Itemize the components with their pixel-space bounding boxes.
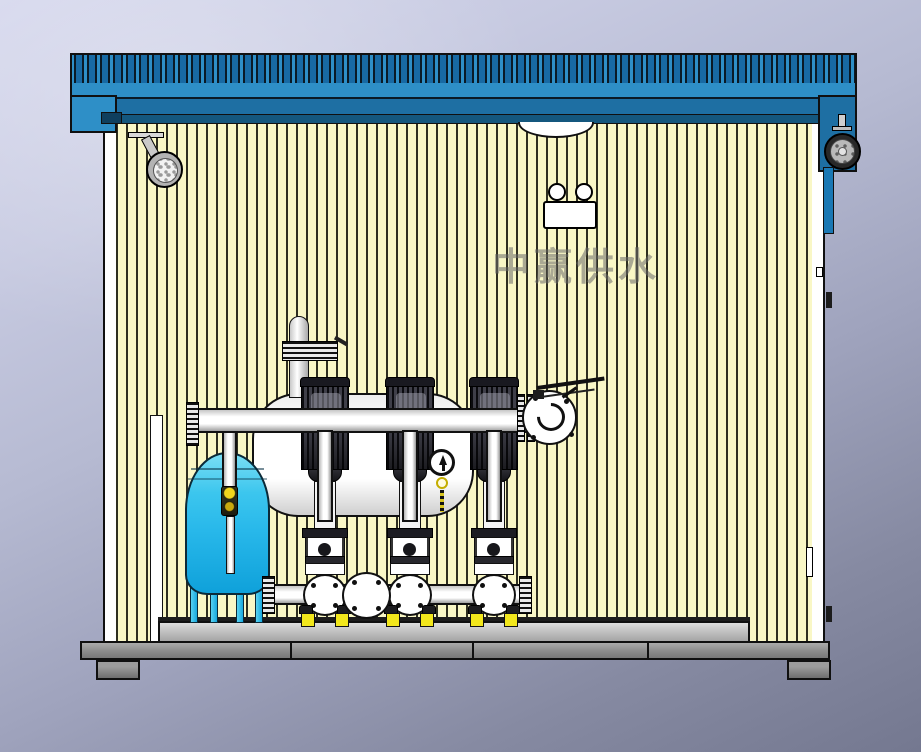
valve-bolt [531, 435, 536, 440]
manifold-left-flange [186, 402, 199, 446]
base-foot-left [96, 660, 140, 680]
watermark-text: 中赢供水 [492, 236, 682, 291]
door-hinge-top [826, 292, 832, 308]
tank-inlet-pipe [222, 430, 237, 490]
tank-pipe-valve-icon [221, 486, 238, 516]
vibration-damper [470, 613, 484, 627]
pump-riser-pipe [402, 430, 418, 522]
flange-bolt [376, 606, 381, 611]
vibration-damper [386, 613, 400, 627]
flange-bolt [311, 583, 316, 588]
door-knob [816, 267, 823, 277]
vibration-damper [301, 613, 315, 627]
flange-bolt [333, 583, 338, 588]
vibration-damper [335, 613, 349, 627]
pump-coupling-ball [318, 543, 331, 556]
indicator-box [543, 201, 597, 229]
beam-seam [290, 643, 292, 658]
base-frame-beam [80, 641, 830, 660]
flange-bolt [376, 580, 381, 585]
beam-seam [647, 643, 649, 658]
control-cabinet [823, 167, 834, 234]
indicator-lamp-left [548, 183, 566, 201]
pump-riser-pipe [486, 430, 502, 522]
flange-bolt [480, 583, 485, 588]
gauge-needle-stem [442, 462, 445, 471]
roof-eave-strip [118, 114, 820, 124]
gauge-stem [440, 490, 444, 512]
roof-left-notch [101, 112, 122, 124]
suction-right-flange [519, 576, 532, 614]
vibration-damper [504, 613, 518, 627]
pump-riser-pipe [317, 430, 333, 522]
spotlight-lens [153, 158, 178, 183]
tank-drain-pipe [226, 516, 235, 574]
roof-corrugation [72, 55, 855, 83]
exhaust-fan-hub [838, 147, 847, 156]
indicator-lamp-right [575, 183, 593, 201]
door-handle [806, 547, 813, 577]
pump-coupling-ball [487, 543, 500, 556]
door-hinge-bottom [826, 606, 832, 622]
vibration-damper [420, 613, 434, 627]
discharge-manifold [189, 408, 533, 433]
valve-bolt [564, 399, 569, 404]
flange-bolt [418, 583, 423, 588]
valve-bolt [569, 432, 574, 437]
base-foot-right [787, 660, 831, 680]
roof-lower-band [100, 97, 855, 115]
flange-bolt [352, 606, 357, 611]
gauge-valve-ring [436, 477, 448, 489]
flange-bolt [352, 580, 357, 585]
equipment-platform [158, 621, 750, 643]
fan-stem-bar [832, 126, 852, 131]
flange-bolt [502, 583, 507, 588]
pump-station-cad-render: 中赢供水 [0, 0, 921, 752]
beam-seam [472, 643, 474, 658]
pump-coupling-ball [403, 543, 416, 556]
air-valve-flange [282, 341, 338, 361]
flange-bolt [396, 583, 401, 588]
frame-post [150, 415, 163, 642]
suction-left-flange [262, 576, 275, 614]
suction-blind-flange [342, 572, 391, 619]
